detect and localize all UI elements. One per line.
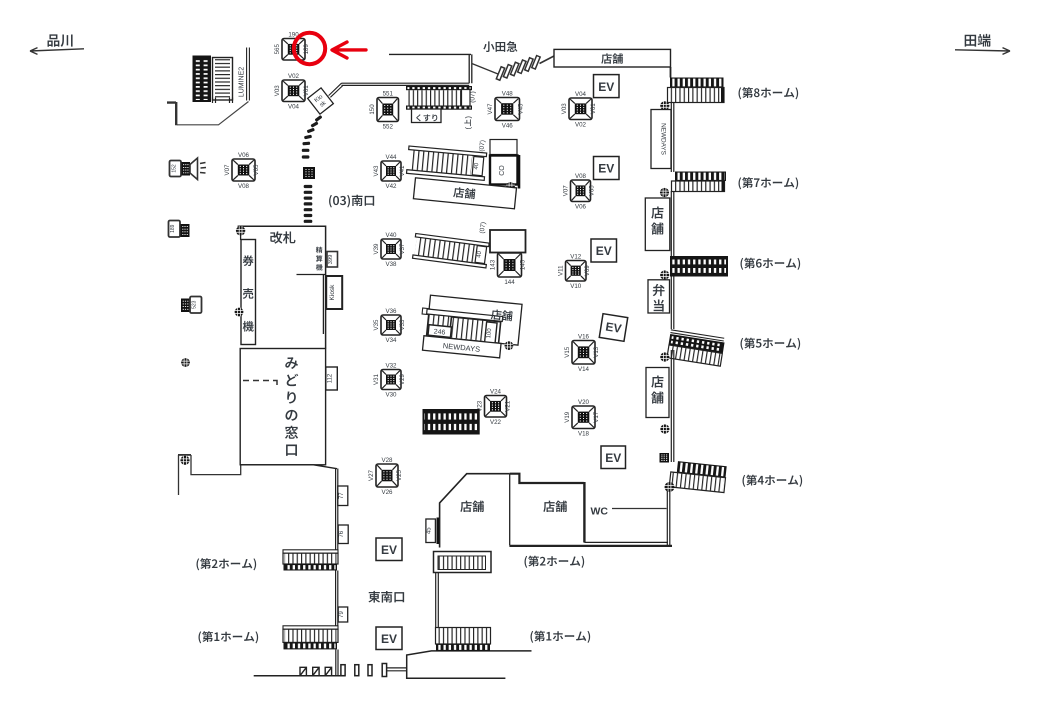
svg-text:144: 144 — [504, 279, 515, 286]
svg-text:V48: V48 — [502, 90, 514, 97]
svg-text:V19: V19 — [564, 411, 571, 423]
svg-text:V47: V47 — [487, 103, 494, 115]
svg-text:EV: EV — [596, 244, 612, 258]
svg-text:V41: V41 — [399, 165, 406, 177]
svg-text:79: 79 — [339, 611, 345, 618]
svg-text:V29: V29 — [399, 373, 406, 385]
svg-text:V01: V01 — [303, 85, 310, 97]
svg-text:(07): (07) — [470, 91, 477, 103]
svg-text:189: 189 — [170, 224, 176, 233]
svg-text:V33: V33 — [399, 319, 406, 331]
svg-text:V05: V05 — [589, 185, 596, 197]
svg-text:523: 523 — [192, 300, 198, 309]
svg-text:NEWDAYS: NEWDAYS — [659, 123, 666, 155]
svg-text:V12: V12 — [570, 253, 582, 260]
svg-text:V36: V36 — [385, 308, 397, 315]
svg-text:V05: V05 — [253, 164, 260, 176]
svg-text:EV: EV — [598, 80, 614, 94]
svg-text:V25: V25 — [396, 469, 403, 481]
svg-text:V43: V43 — [373, 165, 380, 177]
svg-text:V16: V16 — [578, 333, 590, 340]
svg-text:100: 100 — [486, 328, 493, 339]
svg-text:V35: V35 — [373, 319, 380, 331]
svg-text:Kiosk: Kiosk — [329, 284, 336, 301]
svg-text:EV: EV — [605, 451, 621, 465]
svg-text:V03: V03 — [274, 85, 281, 97]
svg-text:EV: EV — [598, 162, 614, 176]
svg-text:EV: EV — [381, 543, 397, 557]
svg-text:V30: V30 — [385, 392, 397, 399]
svg-text:399: 399 — [328, 255, 334, 265]
svg-text:V37: V37 — [399, 243, 406, 255]
svg-text:EV: EV — [604, 320, 622, 336]
svg-text:V02: V02 — [575, 122, 587, 129]
svg-text:EV: EV — [381, 632, 397, 646]
svg-text:40: 40 — [474, 162, 481, 170]
svg-text:WC: WC — [591, 506, 609, 518]
svg-text:246: 246 — [433, 329, 445, 337]
svg-text:CO: CO — [499, 165, 506, 176]
svg-text:V06: V06 — [575, 204, 587, 211]
svg-text:V07: V07 — [562, 185, 569, 197]
svg-text:V08: V08 — [238, 183, 250, 190]
svg-text:V03: V03 — [561, 103, 568, 115]
svg-text:V07: V07 — [224, 164, 231, 176]
svg-text:V08: V08 — [575, 173, 587, 180]
svg-text:V18: V18 — [578, 431, 590, 438]
svg-text:565: 565 — [274, 44, 281, 55]
svg-text:150: 150 — [369, 104, 376, 115]
svg-text:V42: V42 — [385, 183, 397, 190]
svg-text:V24: V24 — [490, 388, 502, 395]
svg-text:V27: V27 — [368, 469, 375, 481]
svg-text:V34: V34 — [385, 337, 397, 344]
svg-text:(07): (07) — [479, 140, 487, 152]
svg-text:V13: V13 — [593, 346, 600, 358]
svg-text:V44: V44 — [385, 154, 397, 161]
svg-text:552: 552 — [383, 124, 394, 131]
svg-text:145: 145 — [520, 259, 527, 270]
svg-text:V06: V06 — [238, 152, 250, 159]
svg-text:V28: V28 — [381, 457, 393, 464]
svg-text:V21: V21 — [505, 400, 512, 412]
svg-text:V14: V14 — [578, 366, 590, 373]
svg-text:V15: V15 — [564, 346, 571, 358]
svg-text:V40: V40 — [385, 232, 397, 239]
svg-text:V45: V45 — [518, 103, 525, 115]
svg-text:V02: V02 — [288, 73, 300, 80]
svg-text:(07): (07) — [479, 222, 487, 234]
svg-text:V09: V09 — [584, 265, 591, 277]
svg-text:LUMINE2: LUMINE2 — [239, 67, 246, 97]
svg-text:V01: V01 — [590, 103, 597, 115]
svg-text:V04: V04 — [575, 91, 587, 98]
svg-text:77: 77 — [339, 492, 345, 499]
svg-text:152: 152 — [172, 164, 178, 173]
svg-text:V04: V04 — [288, 104, 300, 111]
svg-text:V22: V22 — [490, 419, 502, 426]
svg-text:V11: V11 — [557, 265, 564, 276]
svg-text:189: 189 — [303, 44, 310, 55]
svg-text:45: 45 — [427, 527, 433, 534]
svg-text:V32: V32 — [385, 362, 397, 369]
svg-text:V31: V31 — [373, 373, 380, 385]
svg-text:V38: V38 — [385, 261, 397, 268]
svg-text:V17: V17 — [593, 411, 600, 423]
svg-text:112: 112 — [328, 373, 334, 383]
svg-text:V26: V26 — [381, 489, 393, 496]
svg-text:V39: V39 — [373, 243, 380, 255]
svg-text:V20: V20 — [578, 399, 590, 406]
svg-text:551: 551 — [383, 90, 394, 97]
svg-text:): ) — [464, 116, 473, 119]
svg-text:76: 76 — [339, 530, 345, 537]
svg-text:(: ( — [464, 127, 473, 130]
svg-text:V46: V46 — [502, 123, 514, 130]
svg-text:143: 143 — [489, 259, 496, 270]
svg-text:V10: V10 — [570, 283, 582, 290]
